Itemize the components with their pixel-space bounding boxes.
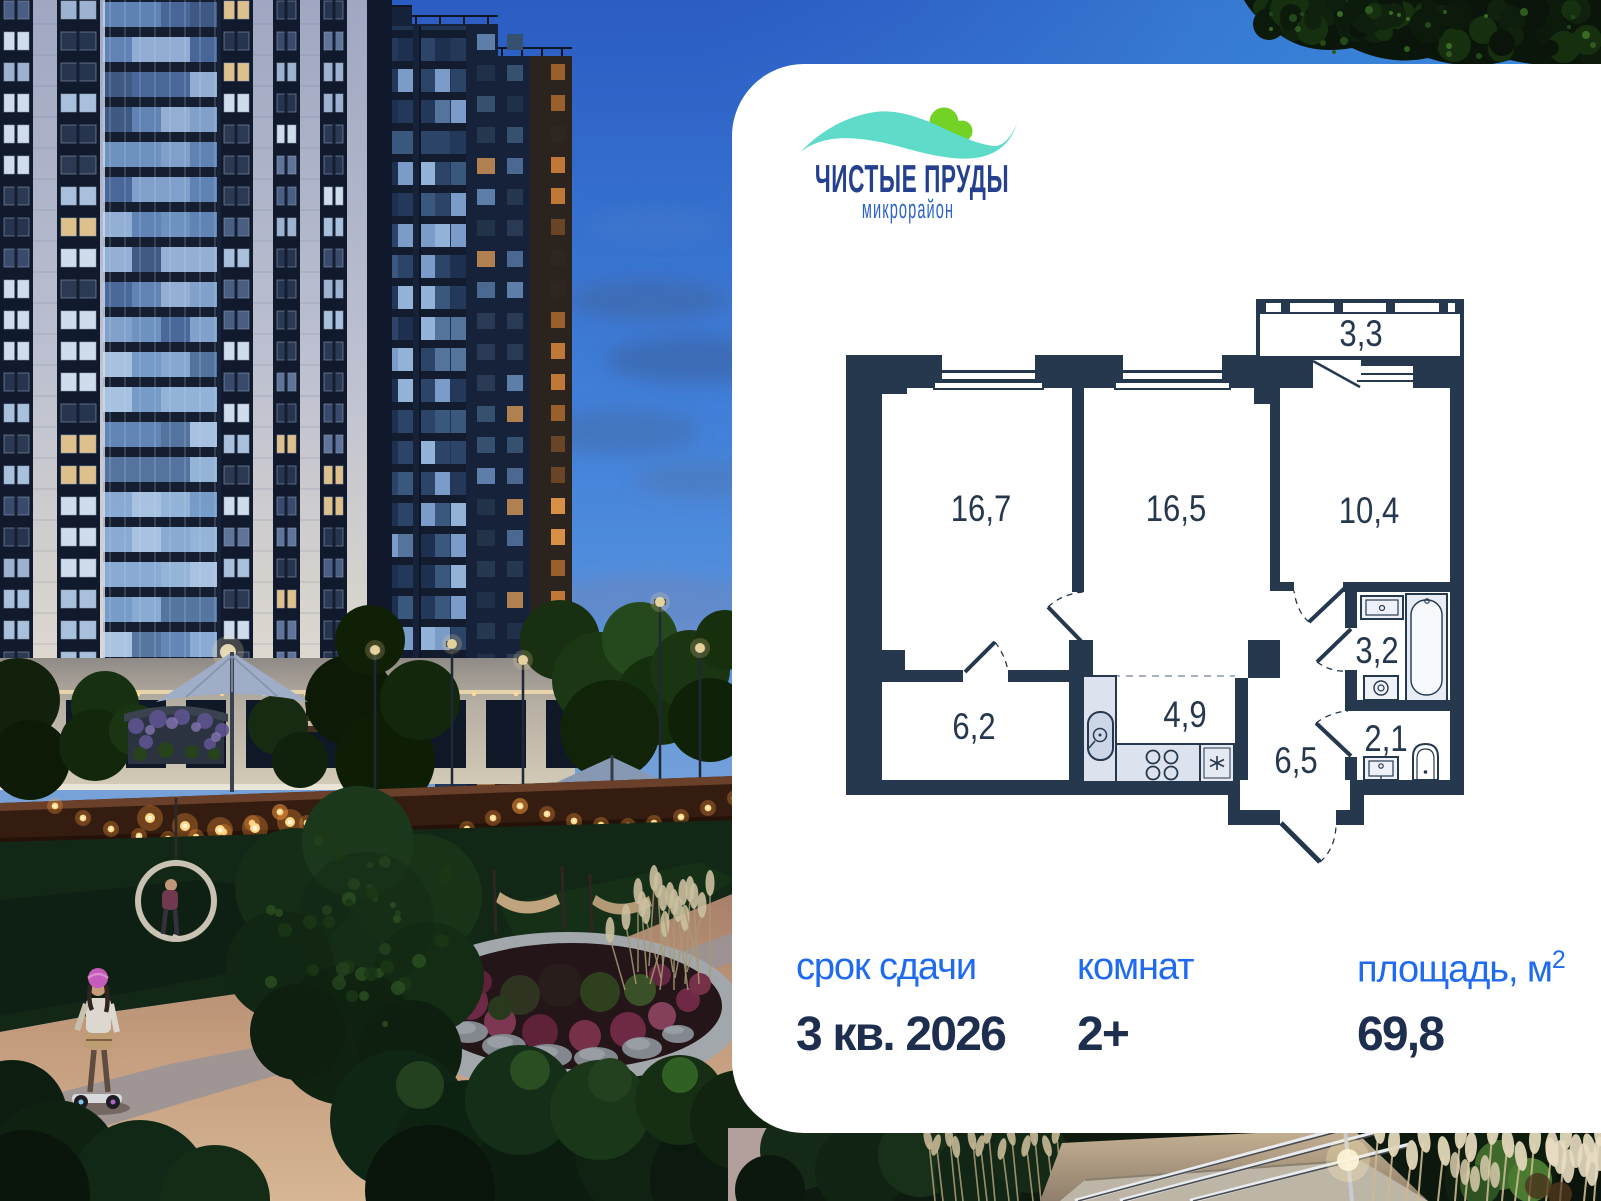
- svg-text:16,5: 16,5: [1146, 489, 1206, 530]
- svg-text:3,2: 3,2: [1355, 631, 1398, 672]
- svg-text:6,2: 6,2: [952, 707, 995, 748]
- svg-text:16,7: 16,7: [951, 489, 1011, 530]
- svg-text:4,9: 4,9: [1163, 695, 1206, 736]
- svg-text:2,1: 2,1: [1364, 719, 1407, 760]
- svg-text:10,4: 10,4: [1339, 491, 1399, 532]
- svg-text:6,5: 6,5: [1274, 741, 1317, 782]
- svg-text:3,3: 3,3: [1339, 314, 1382, 355]
